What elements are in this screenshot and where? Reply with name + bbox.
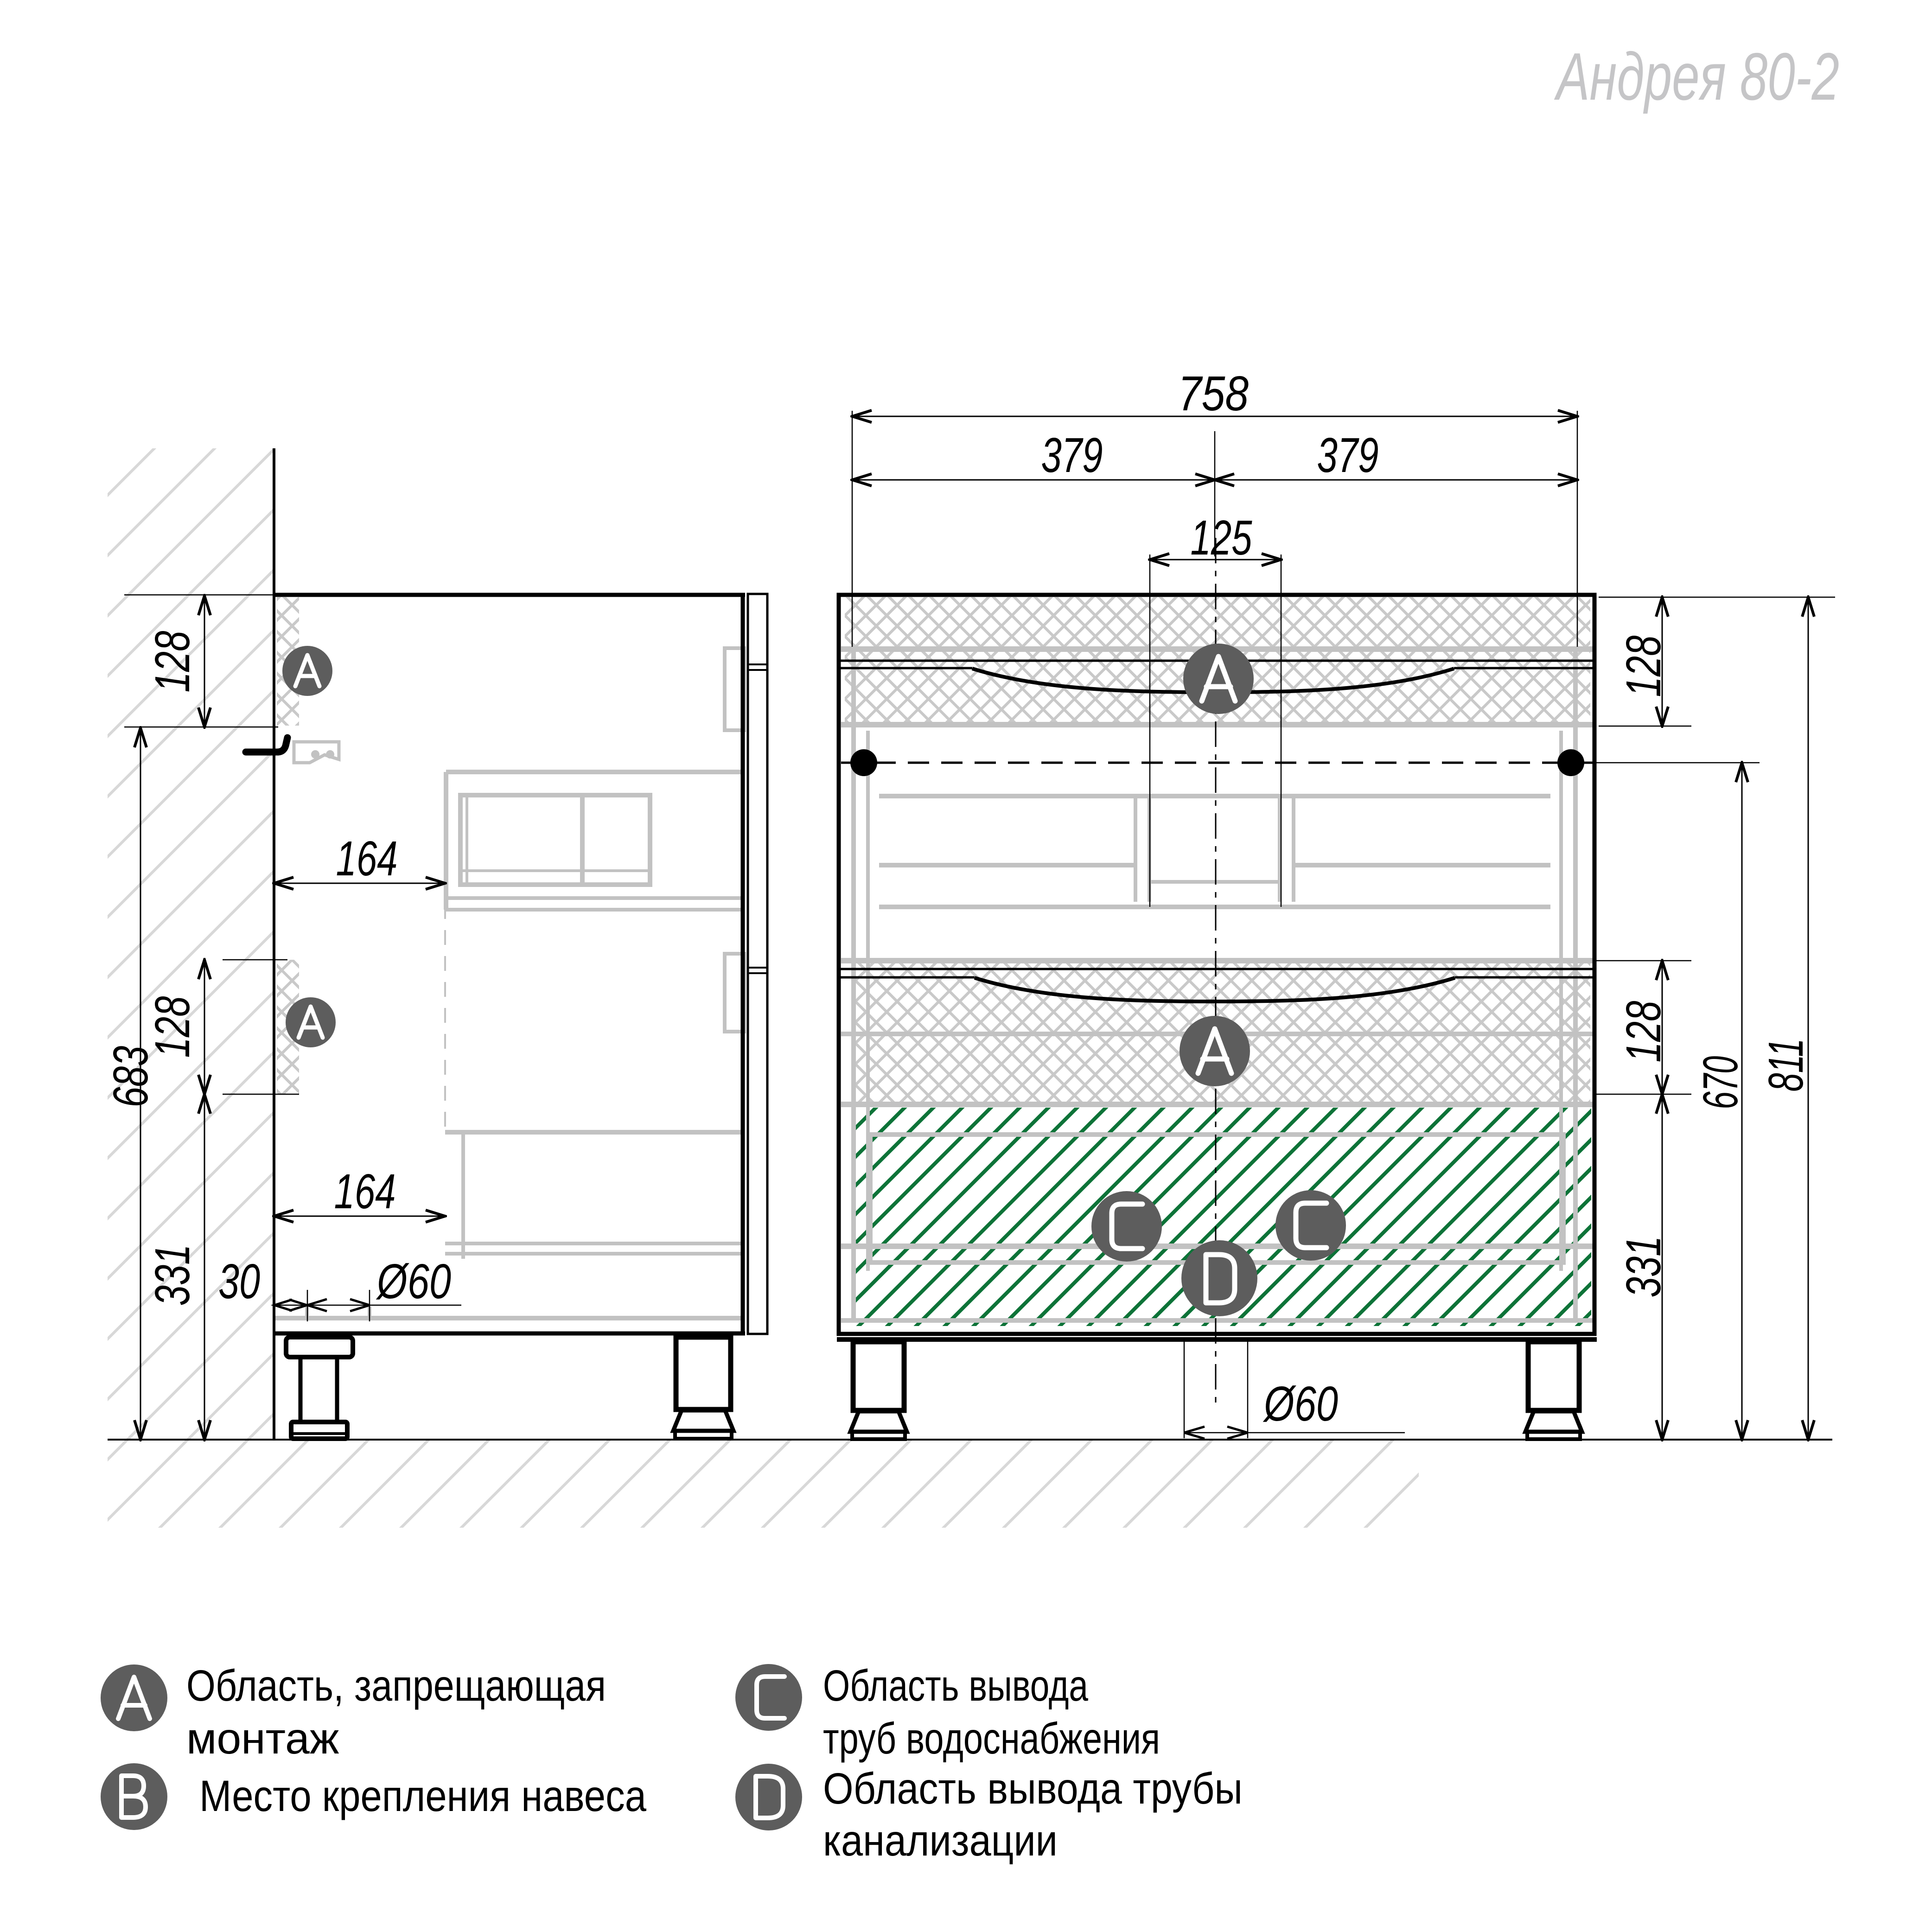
- svg-text:Место крепления навеса: Место крепления навеса: [199, 1772, 646, 1821]
- svg-text:Андрея 80-2: Андрея 80-2: [1554, 39, 1839, 114]
- svg-text:128: 128: [1616, 635, 1671, 697]
- svg-text:758: 758: [1178, 366, 1249, 421]
- svg-text:379: 379: [1317, 428, 1379, 483]
- svg-text:Ø60: Ø60: [376, 1254, 451, 1309]
- svg-text:670: 670: [1693, 1056, 1748, 1109]
- svg-text:монтаж: монтаж: [186, 1714, 339, 1763]
- svg-text:128: 128: [1616, 1001, 1671, 1062]
- svg-text:164: 164: [334, 1164, 396, 1219]
- svg-text:Область вывода трубы: Область вывода трубы: [823, 1764, 1243, 1813]
- svg-text:128: 128: [145, 996, 200, 1058]
- svg-text:164: 164: [336, 831, 398, 886]
- svg-text:Область вывода: Область вывода: [823, 1661, 1088, 1710]
- svg-text:811: 811: [1759, 1039, 1813, 1092]
- svg-text:Область, запрещающая: Область, запрещающая: [186, 1661, 606, 1710]
- svg-text:труб водоснабжения: труб водоснабжения: [823, 1714, 1160, 1763]
- svg-text:125: 125: [1191, 510, 1253, 565]
- svg-text:Ø60: Ø60: [1263, 1377, 1338, 1431]
- svg-text:331: 331: [145, 1244, 200, 1306]
- svg-text:30: 30: [218, 1254, 260, 1309]
- svg-text:канализации: канализации: [823, 1816, 1058, 1865]
- svg-text:128: 128: [145, 631, 200, 692]
- svg-text:379: 379: [1041, 428, 1103, 483]
- svg-text:331: 331: [1616, 1236, 1671, 1298]
